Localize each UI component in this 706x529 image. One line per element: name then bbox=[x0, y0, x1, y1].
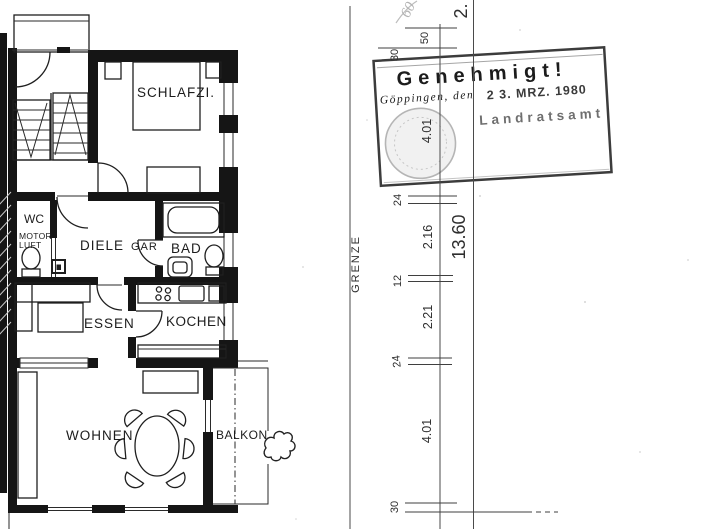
nightstand-right bbox=[206, 62, 221, 78]
kitchen-counter-low bbox=[138, 345, 226, 358]
living-table bbox=[135, 416, 179, 476]
walls bbox=[0, 33, 238, 529]
windows bbox=[20, 83, 233, 511]
stamp-place-line: Göppingen, den bbox=[380, 89, 475, 107]
door-essen bbox=[97, 285, 122, 310]
dim-30-top: 30 bbox=[389, 49, 401, 61]
window-bad bbox=[224, 233, 233, 267]
dim-50: 50 bbox=[419, 32, 431, 44]
sink bbox=[168, 257, 192, 277]
right-wall-seg2 bbox=[219, 115, 238, 133]
door-kochen bbox=[136, 311, 162, 337]
balcony-door-frame bbox=[206, 400, 211, 432]
bad-wall-upper bbox=[155, 201, 163, 240]
staircase bbox=[12, 15, 89, 160]
dining-bench-top bbox=[15, 283, 90, 302]
door-entry bbox=[57, 197, 88, 228]
dim-24-b: 24 bbox=[390, 355, 403, 369]
sideboard-top bbox=[143, 371, 198, 393]
mid-wall-left bbox=[8, 277, 98, 285]
chair bbox=[121, 406, 143, 427]
living-wall-a bbox=[8, 358, 20, 368]
balcony-wall-lower bbox=[203, 432, 213, 505]
wc-toilet-tank bbox=[22, 269, 40, 277]
dim-401-top: 4.01 bbox=[420, 119, 434, 143]
top-wall bbox=[88, 50, 238, 62]
label-wohnen: WOHNEN bbox=[66, 428, 134, 443]
tick-12 bbox=[408, 276, 453, 282]
window-schlafzi-1 bbox=[224, 83, 233, 115]
bathtub-inner bbox=[168, 207, 219, 233]
floor-plan: SCHLAFZI. WC MOTOR LUFT DIELE GAR BAD ES… bbox=[0, 15, 295, 529]
dim-24-a: 24 bbox=[392, 194, 404, 206]
handwritten-note: 60 bbox=[396, 0, 419, 23]
vent-shaft-core bbox=[57, 265, 62, 271]
dim-216: 2.16 bbox=[421, 225, 435, 249]
stair-treads-2 bbox=[53, 103, 88, 153]
chairs bbox=[114, 406, 195, 492]
living-wall-b bbox=[88, 358, 98, 368]
stair-arrow-2 bbox=[55, 95, 86, 155]
dim-partial-top: 2. bbox=[451, 3, 471, 18]
chair bbox=[121, 472, 143, 491]
living-wall-c bbox=[136, 358, 238, 368]
stair-divider-wall bbox=[88, 62, 98, 163]
window-wohnen-2 bbox=[125, 508, 168, 511]
kitchen-divider-upper bbox=[128, 285, 136, 311]
sideboard-left bbox=[18, 372, 37, 498]
bottom-wall-a bbox=[8, 505, 48, 513]
boundary-label: GRENZE bbox=[350, 235, 362, 293]
label-kochen: KOCHEN bbox=[166, 314, 227, 329]
kitchen-sink bbox=[179, 286, 204, 301]
tick-24-a bbox=[408, 196, 457, 204]
balcony-wall-upper bbox=[203, 368, 213, 400]
handwritten-60: 60 bbox=[398, 0, 419, 20]
label-garderobe: GAR bbox=[131, 241, 158, 253]
right-wall-seg3 bbox=[219, 167, 238, 233]
chair bbox=[183, 439, 195, 460]
mid-wall-right bbox=[124, 277, 238, 285]
dresser bbox=[147, 167, 200, 193]
plan-drawing: Genehmigt! Göppingen, den 2 3. MRZ. 1980… bbox=[0, 0, 706, 529]
dining-bench-side bbox=[15, 283, 32, 331]
right-wall-seg1 bbox=[219, 62, 238, 83]
nightstand-left bbox=[105, 62, 121, 79]
dim-total-1360: 13.60 bbox=[449, 214, 469, 259]
label-wc: WC bbox=[24, 212, 44, 226]
chair bbox=[166, 473, 188, 492]
scanned-floor-plan-page: Genehmigt! Göppingen, den 2 3. MRZ. 1980… bbox=[0, 0, 706, 529]
sink-basin bbox=[173, 262, 187, 273]
window-wohnen-1 bbox=[48, 508, 92, 511]
bad-wall-lower bbox=[155, 266, 163, 277]
revision-cloud-mark bbox=[264, 431, 295, 460]
tick-24-b bbox=[408, 358, 452, 365]
door-vestibule bbox=[15, 52, 50, 87]
bottom-wall-b bbox=[92, 505, 125, 513]
label-balkon: BALKON bbox=[216, 428, 268, 442]
window-schlafzi-2 bbox=[224, 133, 233, 167]
dim-30-bottom: 30 bbox=[389, 501, 401, 513]
label-essen: ESSEN bbox=[84, 316, 135, 331]
dim-221: 2.21 bbox=[421, 305, 435, 329]
kitchen-divider-lower bbox=[128, 337, 136, 358]
dim-12: 12 bbox=[392, 275, 404, 287]
label-bad: BAD bbox=[171, 241, 202, 256]
wc-toilet bbox=[22, 247, 40, 269]
dining-table bbox=[38, 303, 83, 332]
stamp-date: 2 3. MRZ. 1980 bbox=[486, 82, 587, 102]
hall-wall-left bbox=[8, 192, 55, 201]
vestibule-post bbox=[57, 47, 70, 53]
label-luft: LUFT bbox=[19, 240, 41, 250]
label-diele: DIELE bbox=[80, 238, 124, 253]
door-schlafzimmer bbox=[98, 163, 128, 193]
stove-burners bbox=[156, 287, 171, 301]
approval-stamp: Genehmigt! Göppingen, den 2 3. MRZ. 1980… bbox=[374, 47, 612, 185]
bottom-wall-c bbox=[168, 505, 238, 513]
label-schlafzimmer: SCHLAFZI. bbox=[137, 85, 215, 100]
bad-toilet bbox=[205, 245, 223, 267]
stamp-authority: Landratsamt bbox=[479, 105, 605, 127]
dim-401-bottom: 4.01 bbox=[420, 419, 434, 443]
